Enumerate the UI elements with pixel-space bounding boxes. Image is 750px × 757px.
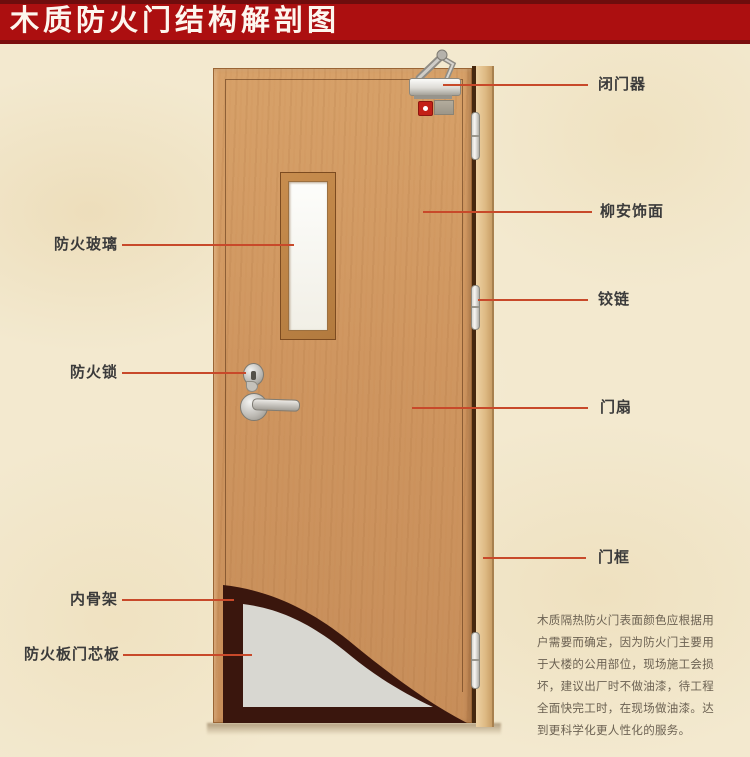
leader-line-fire-glass	[122, 244, 294, 246]
label-hinge: 铰链	[598, 292, 630, 308]
diagram-canvas: 木质防火门结构解剖图	[0, 0, 750, 757]
leader-line-door-closer	[443, 84, 588, 86]
fire-rating-badge	[418, 101, 433, 116]
description-note: 木质隔热防火门表面颜色应根据用户需要而确定，因为防火门主要用于大楼的公用部位，现…	[537, 610, 715, 742]
label-door-closer: 闭门器	[598, 77, 646, 93]
door-frame-gap	[472, 66, 476, 723]
leader-line-fire-lock	[122, 372, 246, 374]
leader-line-door-frame	[483, 557, 586, 559]
door-closer-bracket	[414, 95, 452, 99]
door-closer-arm-icon	[405, 46, 467, 82]
leader-line-inner-skeleton	[122, 599, 234, 601]
leader-line-hinge	[478, 299, 588, 301]
door-nameplate	[434, 100, 454, 115]
label-core-panel: 防火板门芯板	[18, 647, 120, 663]
label-inner-skeleton: 内骨架	[28, 592, 118, 608]
hinge-bottom	[471, 632, 480, 689]
label-door-leaf: 门扇	[600, 400, 632, 416]
label-door-frame: 门框	[598, 550, 630, 566]
leader-line-veneer	[423, 211, 592, 213]
door-cutaway	[213, 578, 472, 725]
door-closer	[409, 78, 461, 96]
leader-line-door-leaf	[412, 407, 588, 409]
label-fire-lock: 防火锁	[28, 365, 118, 381]
label-fire-glass: 防火玻璃	[28, 237, 118, 253]
hinge-middle	[471, 285, 480, 330]
fire-glass	[288, 181, 328, 331]
title-banner: 木质防火门结构解剖图	[0, 0, 750, 44]
keyhole-icon	[251, 371, 256, 380]
label-veneer: 柳安饰面	[600, 204, 664, 220]
door-frame	[476, 66, 494, 727]
lever-handle	[252, 398, 300, 412]
hinge-top	[471, 112, 480, 160]
leader-line-core-panel	[123, 654, 252, 656]
lock-escutcheon	[246, 381, 258, 392]
page-title: 木质防火门结构解剖图	[0, 4, 750, 39]
vision-panel-frame	[280, 172, 336, 340]
